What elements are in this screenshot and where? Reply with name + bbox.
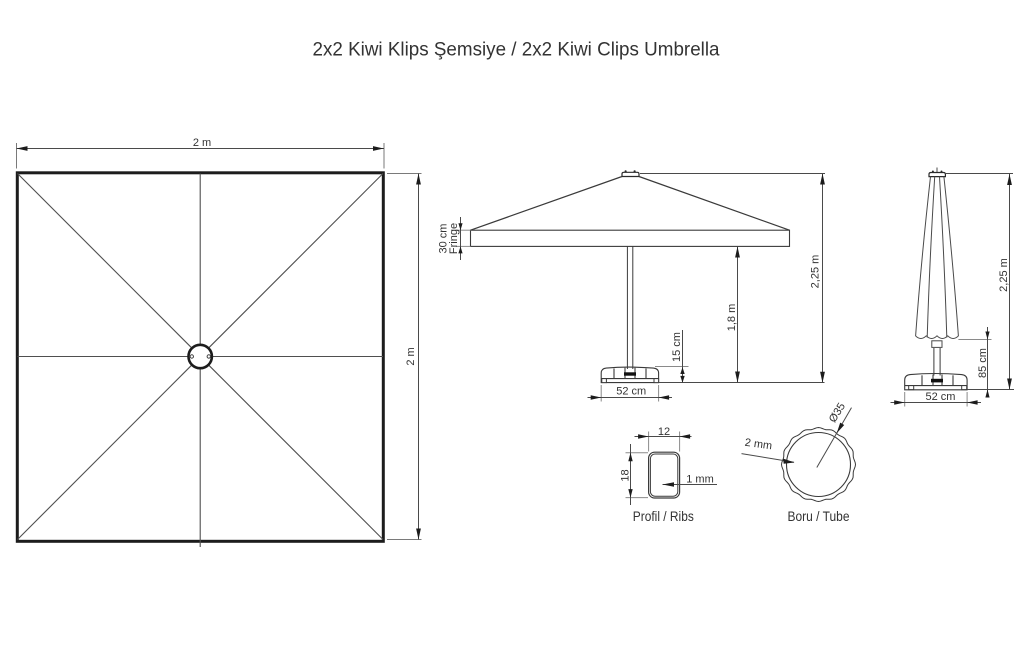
svg-text:Profil / Ribs: Profil / Ribs	[633, 508, 694, 524]
svg-text:2,25 m: 2,25 m	[809, 255, 821, 289]
svg-text:1,8 m: 1,8 m	[726, 304, 738, 332]
svg-text:18: 18	[619, 469, 631, 481]
svg-text:Boru / Tube: Boru / Tube	[787, 508, 849, 524]
svg-text:2 m: 2 m	[405, 347, 417, 365]
svg-text:52 cm: 52 cm	[926, 391, 956, 403]
svg-text:12: 12	[658, 426, 670, 438]
svg-text:15 cm: 15 cm	[671, 332, 683, 362]
svg-text:2,25 m: 2,25 m	[998, 258, 1010, 292]
svg-text:Fringe: Fringe	[448, 223, 460, 254]
svg-text:85 cm: 85 cm	[977, 348, 989, 378]
svg-text:52 cm: 52 cm	[616, 386, 646, 398]
svg-text:1 mm: 1 mm	[686, 474, 714, 486]
svg-text:2x2 Kiwi Klips Şemsiye / 2x2 K: 2x2 Kiwi Klips Şemsiye / 2x2 Kiwi Clips …	[313, 38, 720, 60]
svg-text:2 m: 2 m	[193, 137, 211, 149]
